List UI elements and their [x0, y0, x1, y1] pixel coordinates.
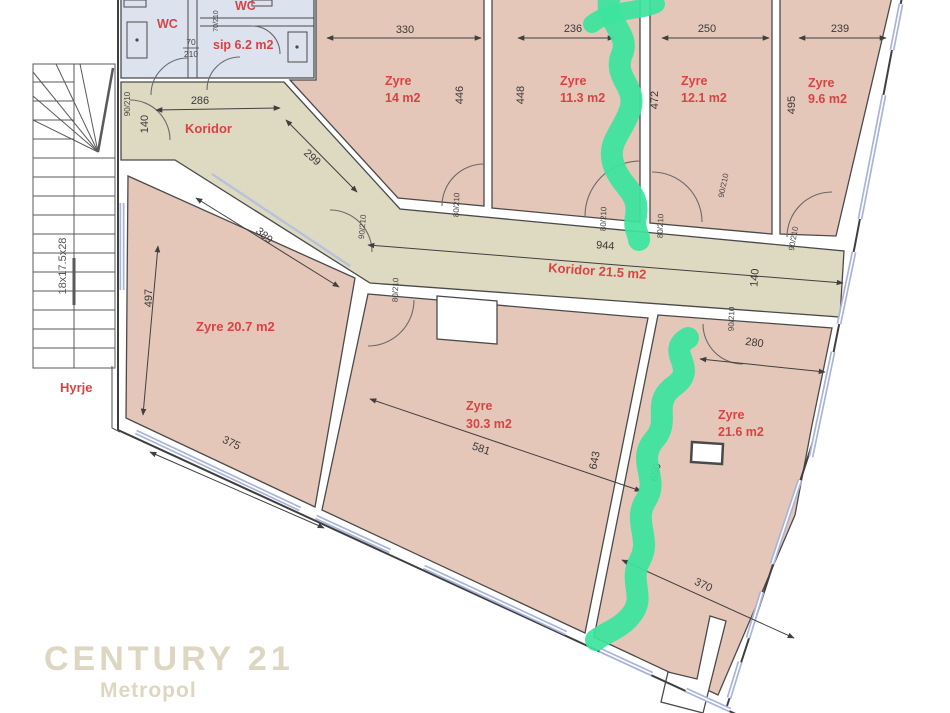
column-symbol: [691, 442, 723, 464]
door-size-label: 90/210: [123, 91, 132, 116]
dimension-140-koridor: 140: [748, 268, 761, 287]
room-area-zyre-11-3: 11.3 m2: [560, 91, 605, 105]
dimension-280: 280: [744, 336, 764, 350]
room-label-zyre-20-7: Zyre 20.7 m2: [196, 319, 275, 334]
svg-text:210: 210: [184, 49, 198, 59]
room-area-zyre-14: 14 m2: [385, 91, 420, 105]
stairs-winders: [33, 64, 113, 158]
watermark-dot: .: [262, 657, 266, 674]
dimension-239: 239: [831, 23, 849, 35]
room-zyre-12-1-area: [650, 0, 772, 234]
door-size-label: 90/210: [727, 306, 737, 331]
door-size-label: 80/210: [599, 206, 609, 231]
watermark: CENTURY 21 . Metropol: [44, 640, 294, 702]
room-area-zyre-12-1: 12.1 m2: [681, 91, 727, 105]
dimension-140-entry: 140: [139, 115, 151, 133]
room-label-wc-right: WC: [235, 0, 256, 13]
shaft-notch: [437, 296, 497, 344]
dimension-944: 944: [596, 239, 615, 252]
room-area-zyre-9-6: 9.6 m2: [808, 92, 847, 106]
dimension-446: 446: [454, 86, 466, 104]
room-label-zyre-30-3: Zyre: [466, 399, 492, 413]
stairs-spec-label: 18x17.5x28: [57, 238, 69, 295]
door-size-label: 80/210: [656, 213, 666, 238]
room-label-zyre-21-6: Zyre: [718, 408, 744, 422]
door-size-label: 80/210: [452, 192, 462, 217]
dimension-472: 472: [649, 91, 661, 109]
dimension-250: 250: [698, 23, 716, 35]
room-area-zyre-30-3: 30.3 m2: [466, 417, 512, 431]
svg-text:70: 70: [186, 37, 196, 47]
room-label-hyrje: Hyrje: [60, 380, 93, 395]
dimension-236: 236: [564, 23, 582, 35]
dimension-497: 497: [143, 289, 155, 307]
dimension-330: 330: [396, 24, 414, 36]
floor-plan: 18x17.5x28 286 299 330 446 448 236 472 2…: [0, 0, 950, 713]
room-area-zyre-21-6: 21.6 m2: [718, 425, 764, 439]
dimension-448: 448: [515, 86, 527, 104]
stairs: 18x17.5x28: [33, 64, 115, 368]
floor-plan-page: 18x17.5x28 286 299 330 446 448 236 472 2…: [0, 0, 950, 713]
room-label-zyre-12-1: Zyre: [681, 74, 707, 88]
door-size-label: 70/210: [213, 10, 220, 32]
room-zyre-9-6-area: [780, 0, 892, 236]
room-label-zyre-9-6: Zyre: [808, 76, 834, 90]
room-label-koridor: Koridor: [185, 121, 232, 136]
watermark-brand: CENTURY 21: [44, 640, 294, 678]
dimension-495: 495: [786, 96, 798, 114]
door-size-label: 80/210: [391, 277, 401, 302]
room-label-wc-left: WC: [157, 17, 178, 31]
room-label-zyre-11-3: Zyre: [560, 74, 586, 88]
dimension-286: 286: [191, 95, 209, 107]
room-label-sip: sip 6.2 m2: [213, 38, 273, 52]
watermark-sub: Metropol: [100, 679, 197, 702]
room-label-zyre-14: Zyre: [385, 74, 411, 88]
